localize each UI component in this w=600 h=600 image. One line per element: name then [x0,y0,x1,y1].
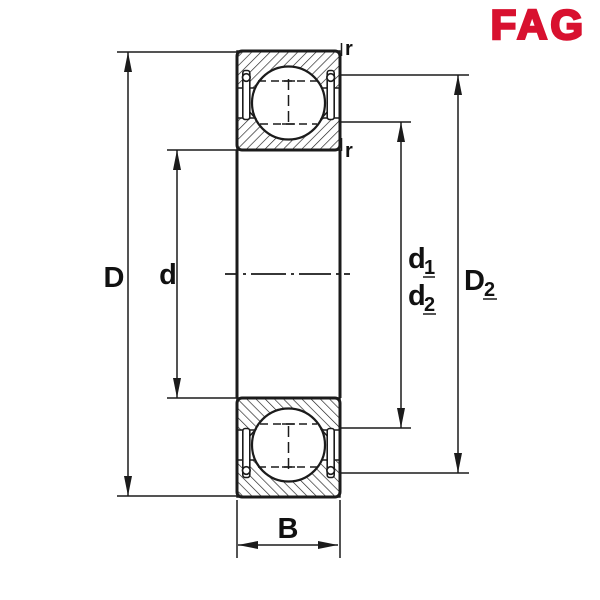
label-d1-subscript: 1 [424,257,435,279]
label-bore-diameter-d: d [159,259,177,291]
label-d2-subscript: 2 [424,294,435,316]
dimension-B: B [237,500,340,558]
label-D2-base: D [464,265,485,297]
label-radius-r-top: r [345,38,353,60]
bearing-top-half [237,51,340,150]
fag-logo: FAG [491,1,586,48]
bearing-bottom-half [237,398,340,497]
label-radius-r-bottom: r [345,140,353,162]
radius-callout-top: r [342,38,354,60]
bearing-technical-drawing: D d d 1 d 2 D 2 [0,0,600,600]
radius-callout-bottom: r [342,138,354,162]
label-outer-diameter-D: D [104,262,125,294]
label-width-B: B [278,513,299,545]
label-D2-subscript: 2 [484,279,495,301]
dimension-d1-d2: d 1 d 2 [341,122,436,428]
